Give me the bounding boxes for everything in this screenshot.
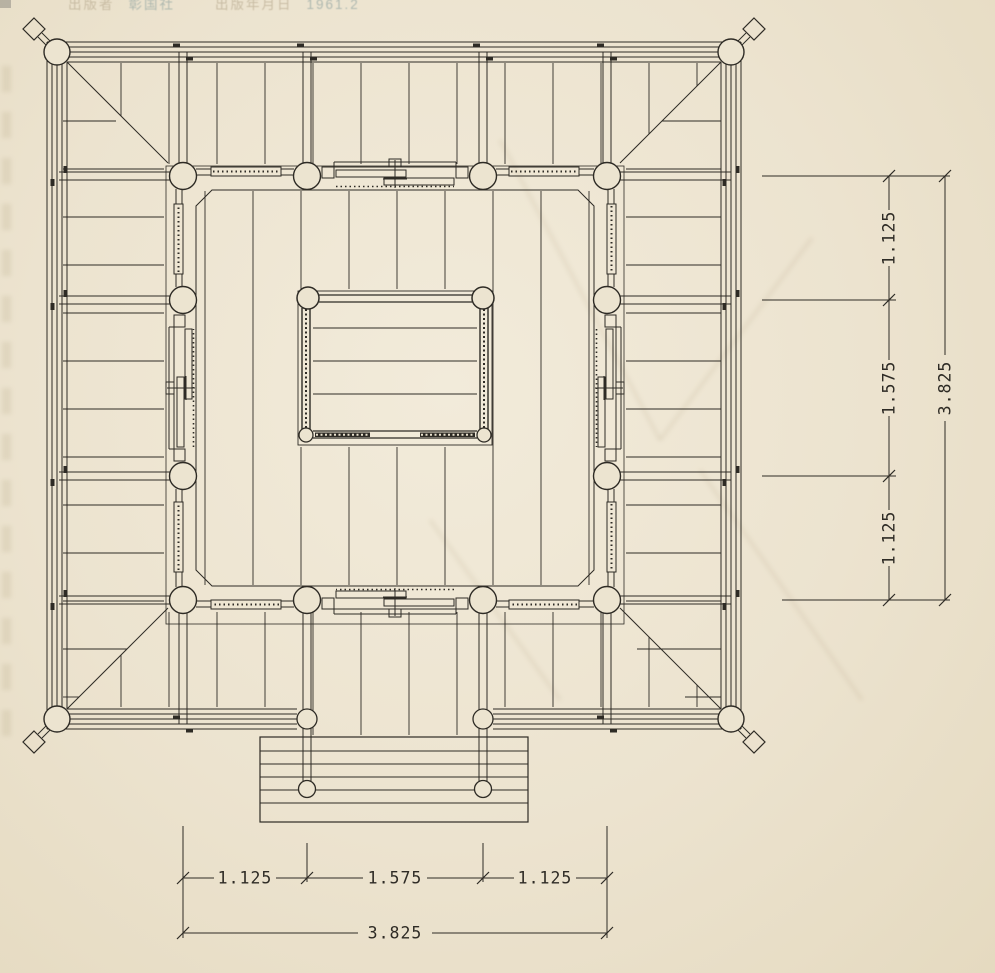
dim-bottom-left: 1.125 xyxy=(218,869,273,888)
scanned-page: 出版者彰国社出版年月日1961.2 1.125 1.575 1.125 3.82… xyxy=(0,0,995,973)
veranda-floor-boards xyxy=(63,62,721,735)
bay-left xyxy=(166,189,195,587)
dim-bottom-middle: 1.575 xyxy=(368,869,423,888)
dim-right-middle: 1.575 xyxy=(880,361,899,416)
dim-bottom-right: 1.125 xyxy=(518,869,573,888)
veranda-edge-railing xyxy=(47,42,741,729)
bay-top xyxy=(196,159,594,188)
inner-sanctum xyxy=(297,287,494,445)
floor-plan-drawing: 1.125 1.575 1.125 3.825 1.125 1.575 1.12… xyxy=(0,0,995,973)
bay-bottom xyxy=(196,588,594,617)
wall-bay-details xyxy=(166,159,624,617)
dim-right-total: 3.825 xyxy=(936,361,955,416)
corner-posts xyxy=(23,18,765,753)
ring-columns xyxy=(170,163,621,614)
side-left xyxy=(51,166,173,610)
entrance-steps xyxy=(260,613,528,822)
bay-right xyxy=(595,189,624,587)
dimension-annotations: 1.125 1.575 1.125 3.825 1.125 1.575 1.12… xyxy=(177,170,955,943)
dim-right-lower: 1.125 xyxy=(880,511,899,566)
dim-bottom-total: 3.825 xyxy=(368,924,423,943)
dim-right-upper: 1.125 xyxy=(880,211,899,266)
outer-wall-ring xyxy=(166,166,624,624)
